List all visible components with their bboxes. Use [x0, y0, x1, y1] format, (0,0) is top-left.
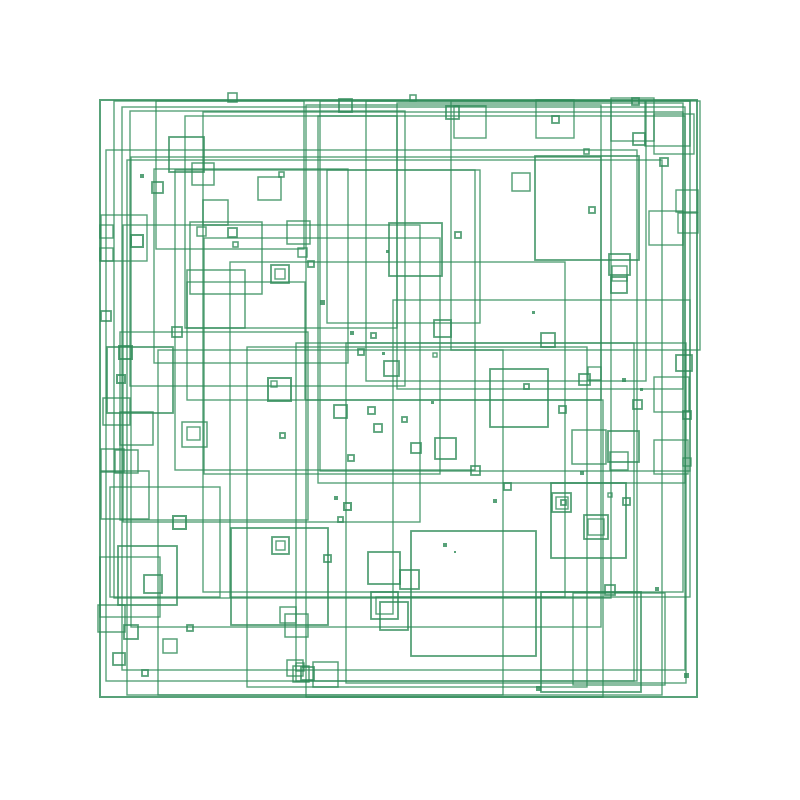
filled-square: [622, 378, 626, 382]
filled-square: [140, 174, 144, 178]
filled-square: [684, 673, 689, 678]
artwork-page: [0, 0, 800, 800]
filled-square: [350, 331, 354, 335]
filled-square: [640, 388, 643, 391]
filled-square: [443, 543, 447, 547]
filled-square: [655, 587, 659, 591]
filled-square: [431, 401, 434, 404]
filled-square: [386, 250, 389, 253]
filled-square: [320, 300, 325, 305]
filled-square: [334, 496, 338, 500]
filled-square: [493, 499, 497, 503]
generative-squares-artwork: [0, 0, 800, 800]
filled-square: [454, 551, 456, 553]
filled-square: [382, 352, 385, 355]
filled-square: [536, 686, 541, 691]
filled-square: [532, 311, 535, 314]
filled-square: [580, 471, 584, 475]
